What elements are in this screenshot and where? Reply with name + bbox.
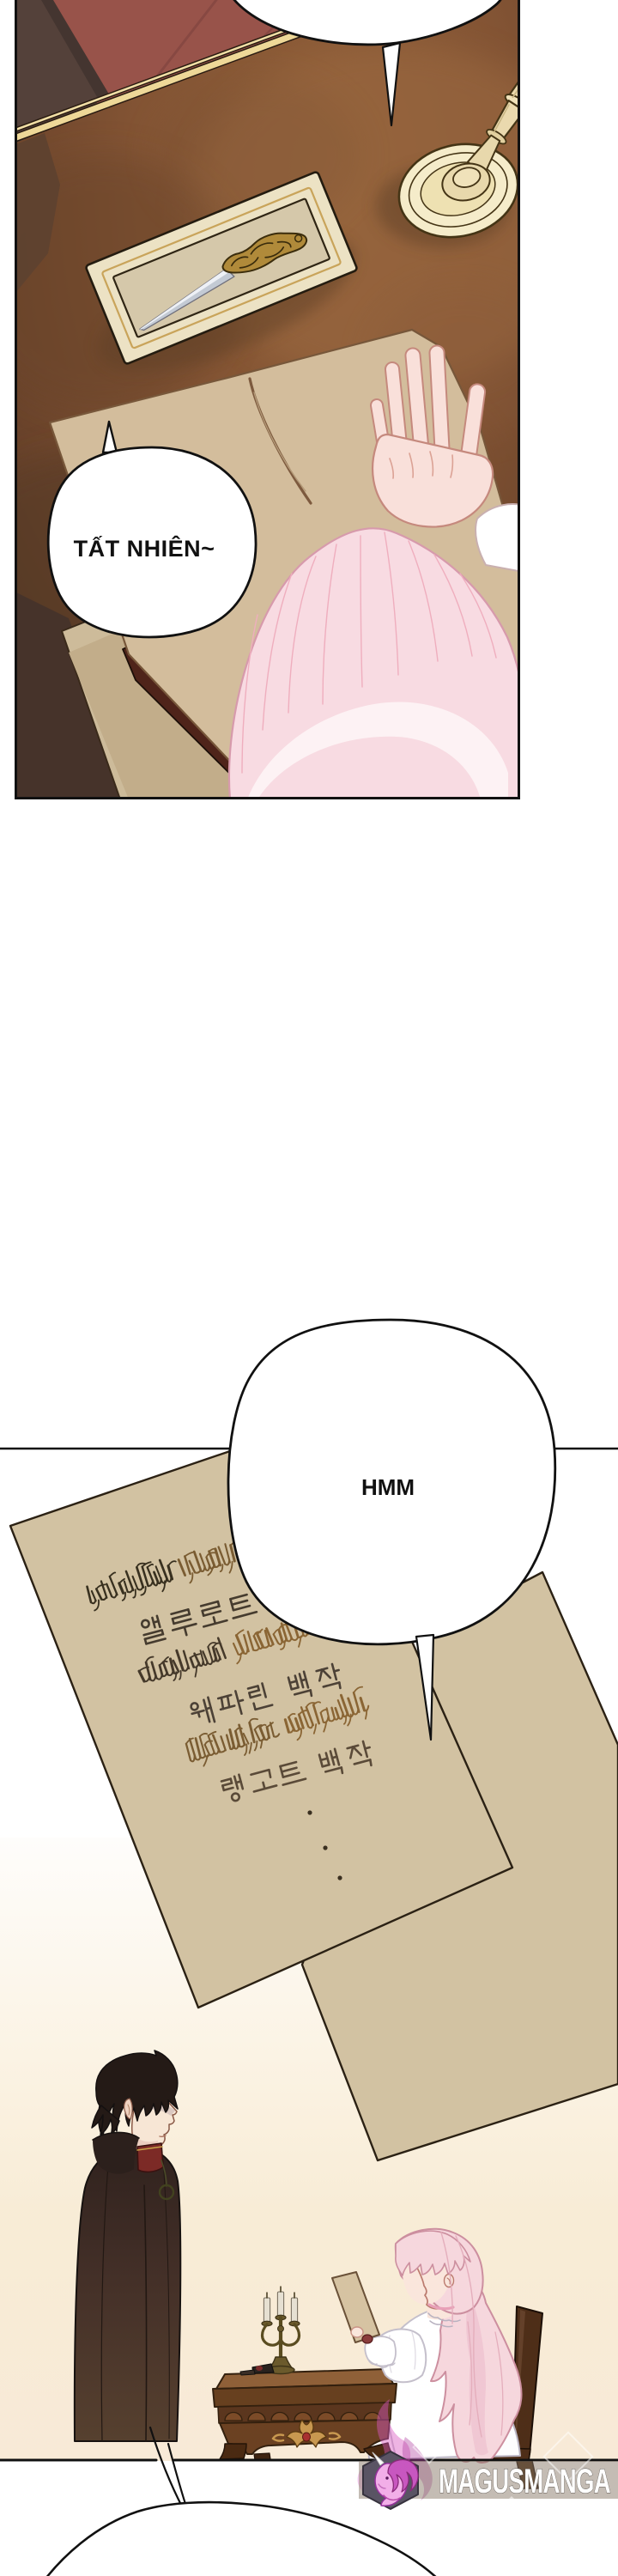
svg-text:TẤT NHIÊN~: TẤT NHIÊN~ [74,535,215,562]
svg-text:MAGUSMANGA: MAGUSMANGA [439,2463,610,2500]
svg-text:HMM: HMM [361,1474,415,1500]
